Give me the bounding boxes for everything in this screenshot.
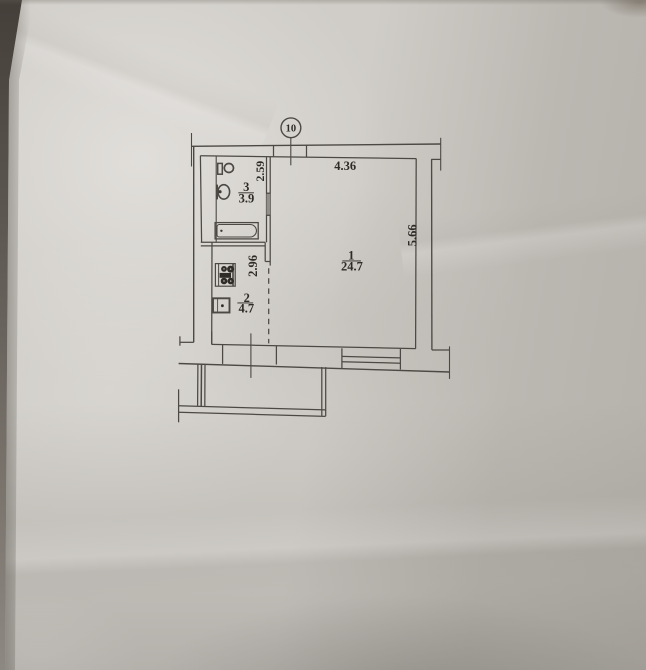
svg-text:24.7: 24.7: [341, 260, 363, 274]
svg-text:2.59: 2.59: [253, 161, 267, 182]
svg-text:10: 10: [286, 124, 297, 135]
svg-text:4.36: 4.36: [334, 159, 356, 173]
svg-text:3.9: 3.9: [239, 191, 255, 205]
svg-text:4.7: 4.7: [238, 302, 254, 316]
svg-text:2.96: 2.96: [246, 255, 260, 277]
svg-text:5.66: 5.66: [406, 224, 420, 246]
